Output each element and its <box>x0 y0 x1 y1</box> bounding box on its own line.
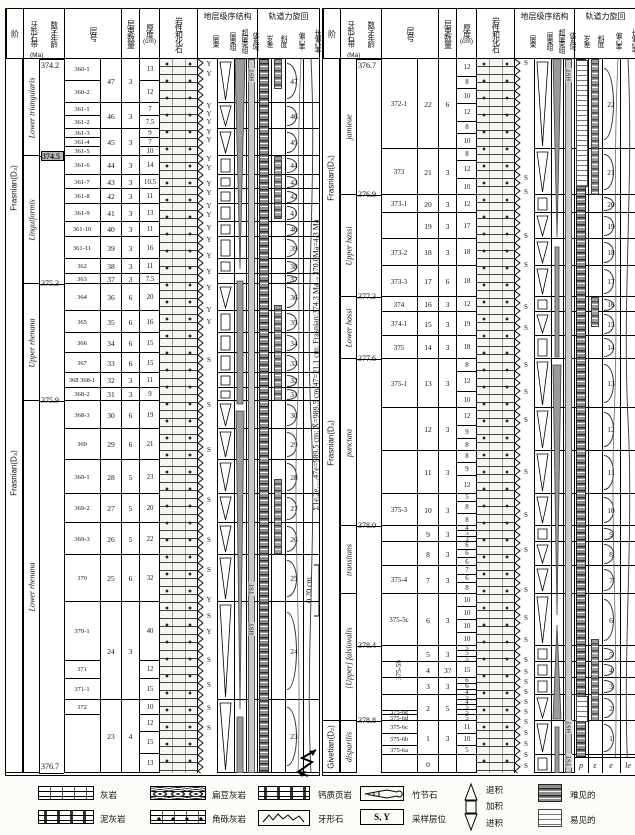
thickness-cell: 588 <box>456 494 476 526</box>
thickness-value: 6 <box>457 550 477 558</box>
bundle-unit-triangle-icon <box>535 151 550 193</box>
bed-row-group: 369-128523 <box>64 460 159 494</box>
thickness-cell: 401215 <box>139 602 159 700</box>
bundle-unit-triangle-icon <box>535 410 550 449</box>
column-separator <box>574 59 575 773</box>
header-numeric-age: 数字年龄 <box>50 21 58 47</box>
bundle-unit-rect-icon <box>218 355 233 371</box>
bed-sub-label: 370-1 <box>64 602 100 661</box>
conodont-zone-box: Lower triangularis <box>23 59 39 156</box>
sample-horizon-label: S <box>204 495 214 504</box>
column-separator <box>303 59 304 773</box>
bed-sub-label: 361-10 <box>64 222 100 237</box>
bundle-unit-triangle-icon <box>535 361 550 406</box>
header-thickness-label: 厚度 <box>146 24 154 38</box>
thickness-cell: 664 <box>456 678 476 695</box>
thickness-value: 7.5 <box>140 274 160 284</box>
bed-row-group: 37416312 <box>381 297 476 312</box>
bed-cell <box>381 678 417 695</box>
bundle-count-cell: 6 <box>121 401 139 429</box>
bed-cell: 375-6e375-6d <box>381 695 417 721</box>
bed-sub-label: 361-3 <box>64 129 100 138</box>
thickness-cell: 14 <box>139 156 159 175</box>
thickness-cell: 16 <box>139 311 159 333</box>
bed-row-group: 93453 <box>381 526 476 542</box>
sample-horizon-label: S <box>521 58 531 67</box>
bed-cell: 369-1 <box>64 460 100 494</box>
bed-row-group: 361-1139316 <box>64 237 159 259</box>
header-bed-number-label: 层号 <box>406 27 414 41</box>
bundle-number-cell: 23 <box>100 700 121 773</box>
bed-cell: 375-6c375-6b375-6a <box>381 721 417 755</box>
bed-label: 374-1 <box>381 312 417 336</box>
common-swatch <box>538 809 562 827</box>
bed-row-group: 33664 <box>381 678 476 695</box>
thickness-cell: 22 <box>139 523 159 555</box>
bundle-number-cell: 38 <box>100 259 121 274</box>
breccia-limestone-swatch <box>150 810 206 824</box>
bundle-number-cell: 0 <box>417 755 438 773</box>
bundle-unit-rect-icon <box>218 313 233 331</box>
age-label: 374.5 <box>41 151 64 161</box>
bundle-count-cell: 5 <box>121 494 139 523</box>
tentaculite-label: 竹节石 <box>412 789 438 801</box>
thickness-cell: 12 <box>456 195 476 213</box>
header-orbit-sub-2: 偏心率 <box>602 23 620 59</box>
bed-row-group: 375-5b43?15 <box>381 662 476 678</box>
thickness-value: 18 <box>457 336 477 359</box>
bed-row-group: 37321381210 <box>381 149 476 195</box>
header-orbit-sub-1: 斜度 <box>588 23 602 59</box>
age-label: 375.9 <box>41 396 64 406</box>
bed-row-group: 370-1371371-1243401215 <box>64 602 159 700</box>
header-stage: 阶 <box>323 9 340 59</box>
thickness-value: 8 <box>457 439 477 451</box>
header-seq-sub-1: 层束组 <box>534 23 551 59</box>
precession-light-segment <box>576 696 588 722</box>
bed-cell: 373-2 <box>381 239 417 266</box>
bundle-number-cell: 15 <box>417 312 438 336</box>
bundle-unit-rect-icon <box>535 338 550 357</box>
header-conodont-zone: 牙形石带 <box>30 21 38 47</box>
bed-label: 372-1 <box>381 59 417 149</box>
bundle-unit-triangle-icon <box>218 557 233 600</box>
thickness-cell: 20 <box>139 494 159 523</box>
bundle-unit-rect-icon <box>218 390 233 399</box>
long-eccentricity-curve <box>620 59 635 773</box>
bundle-count-cell: 3 <box>121 156 139 175</box>
bed-row-group: 369-326522 <box>64 523 159 555</box>
thickness-value: 16 <box>140 237 160 259</box>
thickness-value: 32 <box>140 555 160 602</box>
bed-row-group: 375-473768 <box>381 566 476 594</box>
bundle-unit-rect-icon <box>218 375 233 386</box>
bundle-number-cell: 27 <box>100 494 121 523</box>
retrogradation-icon <box>465 784 477 800</box>
column-body-left: Frasnian(D₃)Frasnian(D₃)Lower triangular… <box>6 59 319 773</box>
bed-row-group: 1138912 <box>381 451 476 494</box>
bed-cell: 375-3 <box>381 494 417 526</box>
sample-horizon-label: S <box>521 687 531 696</box>
thickness-cell: 77.5 <box>139 103 159 129</box>
bundle-unit-rect-icon <box>218 239 233 257</box>
sample-horizon-label: Y <box>204 251 214 260</box>
tentaculite-icon <box>361 787 403 800</box>
sample-horizon-label: Y <box>204 267 214 276</box>
bed-cell: 375-5c <box>381 594 417 646</box>
thickness-cell: 54555 <box>456 695 476 721</box>
thickness-cell: 768 <box>456 566 476 594</box>
bed-cell: 368-3 <box>64 401 100 429</box>
bed-row-group: 3633737.5 <box>64 274 159 284</box>
bundle-count-cell: 3 <box>438 494 456 526</box>
bundle-count-cell: 6 <box>121 353 139 373</box>
bundle-unit-rect-icon <box>535 528 550 540</box>
sample-horizon-label: S <box>521 697 531 706</box>
bundle-count-cell: 3 <box>121 59 139 103</box>
conodont-zone-label: jamieae <box>345 114 354 139</box>
conodont-zone-box: Upper rhenana <box>23 284 39 401</box>
bed-cell: 361-3361-4361-5 <box>64 129 100 156</box>
bundle-unit-triangle-icon <box>218 496 233 521</box>
bundle-number-cell: 19 <box>417 213 438 239</box>
bed-row-group: 361-743310.5 <box>64 175 159 189</box>
bundle-number-cell: 17 <box>417 266 438 297</box>
bed-cell: 366 <box>64 333 100 353</box>
thickness-cell: 17 <box>456 213 476 239</box>
header-seq-sub-0: 层束 <box>197 23 217 59</box>
thickness-value: 12 <box>140 715 160 732</box>
bed-label: 373-2 <box>381 239 417 266</box>
sample-horizon-label: Y <box>204 117 214 126</box>
bed-sub-label: 361-2 <box>64 116 100 129</box>
age-label: 378.4 <box>358 641 381 651</box>
sample-horizon-label: S <box>521 415 531 424</box>
thickness-value: 22 <box>140 523 160 555</box>
thickness-value: 6 <box>457 558 477 566</box>
thickness-value: 11 <box>140 259 160 274</box>
superbundle-wedges <box>551 59 563 773</box>
bed-row-group: 361-842311 <box>64 189 159 204</box>
precession-column <box>576 59 586 773</box>
systems-tract-label: HST <box>248 68 255 82</box>
rare-swatch <box>538 784 562 802</box>
bed-sub-label: 367 <box>64 353 100 373</box>
header-orbit-sub-3: 长偏心率 <box>303 23 319 59</box>
header-lithology: 岩性和化石 <box>476 9 514 59</box>
sample-horizon-label: S <box>521 231 531 240</box>
bed-cell: 361-11 <box>64 237 100 259</box>
bed-row-group: 373-218318 <box>381 239 476 266</box>
orbital-footer-label: p <box>574 758 588 773</box>
bundle-unit-rect-icon <box>218 158 233 173</box>
bed-label: 373-1 <box>381 195 417 213</box>
bed-sub-label: 361-7 <box>64 175 100 189</box>
age-tick <box>39 59 64 60</box>
bed-cell: 375-5b <box>381 662 417 678</box>
marl-swatch <box>38 810 94 824</box>
header-orbit-sub-0: 岁差 <box>257 23 271 59</box>
bed-cell: 369 <box>64 429 100 460</box>
sample-horizon-label: Y <box>204 317 214 326</box>
thickness-value: 10 <box>140 700 160 715</box>
header-orbital-title: 轨道力旋回 <box>586 11 626 22</box>
conodont-zone-box: disparilis <box>340 721 356 773</box>
column-separator <box>588 59 589 773</box>
bundle-count-cell: 3 <box>438 542 456 566</box>
stage-label: Frasnian(D₃) <box>327 155 336 201</box>
sample-horizon-label: S <box>521 260 531 269</box>
bundle-number-cell: 1 <box>417 721 438 755</box>
bed-cell: 373-3 <box>381 266 417 297</box>
bed-cell: 370 <box>64 555 100 602</box>
header-age-unit: (Ma) <box>347 52 360 59</box>
aggradation-label: 加积 <box>486 800 503 812</box>
thickness-value: 12 <box>140 81 160 103</box>
thickness-cell: 19 <box>456 312 476 336</box>
bundle-number-cell: 36 <box>100 284 121 311</box>
thickness-value: 11 <box>140 373 160 388</box>
bed-row-group: 83666 <box>381 542 476 566</box>
conodont-zone-label: Upper rhenana <box>28 318 37 367</box>
bed-cell: 360-1360-2 <box>64 59 100 103</box>
thickness-value: 5 <box>457 746 477 755</box>
bundle-unit-triangle-icon <box>535 241 550 264</box>
sampling-swatch: S, Y <box>360 809 404 825</box>
header-bundle-count-label: 层束数量 <box>127 20 135 48</box>
thickness-value: 17 <box>457 213 477 239</box>
bed-row-group: 368 368-132311 <box>64 373 159 388</box>
conodont-zone-box: transitans <box>340 526 356 594</box>
bed-sub-label: 369 <box>64 429 100 460</box>
tentaculite-swatch <box>360 786 404 801</box>
bed-row-group: 369-227520 <box>64 494 159 523</box>
bundle-count-cell: 3 <box>438 526 456 542</box>
conodont-label: 牙形石 <box>318 813 344 825</box>
bundle-unit-triangle-icon <box>218 431 233 458</box>
thickness-cell: 10101010 <box>456 594 476 646</box>
bed-cell: 370-1371371-1 <box>64 602 100 700</box>
legend: 灰岩 泥灰岩 扁豆灰岩 角砾灰岩 钙质页岩 牙形石 竹节石 S, Y 采样层位 … <box>0 780 635 835</box>
sample-horizon-label: Y <box>204 179 214 188</box>
header-orbit-sub-0: 岁差 <box>574 23 588 59</box>
thickness-value: 7 <box>457 566 477 575</box>
bundle-unit-triangle-icon <box>535 61 550 147</box>
bundle-count-cell: 5 <box>121 523 139 555</box>
sample-horizon-label: Y <box>204 223 214 232</box>
bed-cell: 375-4 <box>381 566 417 594</box>
thickness-cell: 21 <box>139 429 159 460</box>
bundle-unit-triangle-icon <box>218 105 233 127</box>
bundle-unit-rect-icon <box>218 177 233 187</box>
sample-horizon-label: S <box>521 635 531 644</box>
thickness-value: 8 <box>457 77 477 89</box>
bed-sub-label: 369-1 <box>64 460 100 494</box>
bundle-number-cell: 39 <box>100 237 121 259</box>
bundle-number-cell: 24 <box>100 602 121 700</box>
header-orbit-sub-2: 偏心率 <box>285 23 303 59</box>
obliquity-segment <box>591 59 599 195</box>
bed-cell: 369-3 <box>64 523 100 555</box>
thickness-value: 15 <box>140 333 160 353</box>
thickness-value: 16 <box>140 311 160 333</box>
thickness-cell: 9 <box>139 388 159 401</box>
bed-cell: 361-6 <box>64 156 100 175</box>
sample-horizon-label: S <box>521 750 531 759</box>
bundle-count-cell: 6 <box>438 59 456 149</box>
thickness-cell: 10.5 <box>139 175 159 189</box>
bed-row-group: 37223410121513 <box>64 700 159 773</box>
header-thickness-unit: (cm) <box>460 38 473 45</box>
stage-box: Frasnian(D₃)Frasnian(D₃) <box>323 59 340 721</box>
header-seq-sub-1: 层束组 <box>217 23 234 59</box>
bed-cell: 372-1 <box>381 59 417 149</box>
sample-horizon-label: Y <box>204 135 214 144</box>
bundle-number-cell: 9 <box>417 526 438 542</box>
lithology-column <box>159 59 197 773</box>
thickness-value: 6 <box>457 575 477 583</box>
retrogradation-label: 退积 <box>486 784 503 796</box>
progradation-icon <box>465 814 477 830</box>
sample-horizon-label: S <box>204 703 214 712</box>
bundle-count-cell: 6 <box>121 311 139 333</box>
age-label: 378.0 <box>358 521 381 531</box>
header-orbit-sub-1: 斜度 <box>271 23 285 59</box>
thickness-cell: 18 <box>456 239 476 266</box>
thickness-cell: 81210 <box>456 359 476 408</box>
thickness-cell: 11105 <box>456 721 476 755</box>
bundle-count-cell: 3 <box>438 408 456 451</box>
bed-sub-label: 368 368-1 <box>64 373 100 388</box>
bundle-number-cell: 37 <box>100 274 121 284</box>
sample-horizon-label: S <box>521 728 531 737</box>
header-sequence-title: 地层级序结构 <box>521 11 569 22</box>
bed-sub-label: 375-6b <box>381 734 417 746</box>
thickness-cell: 32 <box>139 555 159 602</box>
conodont-zone-label: Lower rhenana <box>28 563 37 612</box>
header-stage: 阶 <box>6 9 23 59</box>
bundle-count-cell: 3 <box>121 388 139 401</box>
sample-horizon-label: S <box>204 400 214 409</box>
bundle-number-cell: 2 <box>417 695 438 721</box>
bundle-number-cell: 13 <box>417 359 438 408</box>
bundle-unit-triangle-icon <box>535 596 550 644</box>
age-label: 375.3 <box>41 279 64 289</box>
bundle-unit-triangle-icon <box>535 544 550 564</box>
bed-sub-label: 360-2 <box>64 81 100 103</box>
conodont-icon <box>259 811 309 825</box>
bed-cell: 372 <box>64 700 100 773</box>
obliquity-segment <box>274 156 282 219</box>
bed-sub-label: 361-5 <box>64 147 100 156</box>
bed-sub-label: 360-1 <box>64 59 100 81</box>
bundle-number-cell: 29 <box>100 429 121 460</box>
systems-tract-label: HST <box>248 622 255 636</box>
thickness-value: 15 <box>140 732 160 754</box>
conodont-zone-label: Upper hassi <box>345 227 354 266</box>
strat-column-right: 阶层号层束数量岩性和化石牙形石带数字年龄(Ma)厚度(cm)地层级序结构层束层束… <box>322 8 635 776</box>
stage-label: Frasnian(D₃) <box>10 165 19 211</box>
bundle-number-cell: 12 <box>417 408 438 451</box>
bed-sub-label: 361-4 <box>64 138 100 147</box>
header-orbit-sub-3: 长偏心率 <box>620 23 635 59</box>
bundle-number-cell: 5 <box>417 646 438 662</box>
bundle-unit-triangle-icon <box>218 702 233 771</box>
sample-horizon-label: Y <box>204 69 214 78</box>
thickness-cell: 9710 <box>139 129 159 156</box>
bundle-number-cell: 20 <box>417 195 438 213</box>
thickness-value: 10 <box>457 89 477 104</box>
bed-sub-label: 371 <box>64 661 100 679</box>
column-separator <box>271 59 272 773</box>
age-label: 376.9 <box>358 190 381 200</box>
thickness-value: 13 <box>140 204 160 222</box>
thickness-value: 8 <box>457 583 477 594</box>
thickness-value: 12 <box>457 408 477 426</box>
column-separator <box>620 59 621 773</box>
age-label: 374.2 <box>41 61 64 71</box>
age-label: 376.7 <box>358 61 381 71</box>
bundle-number-cell: 41 <box>100 204 121 222</box>
header-zone-age: 牙形石带数字年龄(Ma) <box>23 9 64 59</box>
thickness-value: 10 <box>457 594 477 607</box>
sample-horizon-label: S <box>521 677 531 686</box>
zigzag-arrow-icon <box>292 748 322 780</box>
header-bed-number: 层号 <box>64 9 121 59</box>
bundle-count-cell: 3 <box>438 359 456 408</box>
thickness-value: 40 <box>140 602 160 661</box>
conodont-zone-label: transitans <box>345 544 354 576</box>
thickness-value: 10 <box>457 620 477 633</box>
bed-label: 375-5b <box>395 660 403 680</box>
systems-tract-label: HST <box>565 720 572 734</box>
thickness-cell: 18 <box>456 336 476 359</box>
thickness-value: 7.5 <box>140 116 160 129</box>
bundle-number-cell: 34 <box>100 333 121 353</box>
marl-label: 泥灰岩 <box>100 813 126 825</box>
eccentricity-envelope-curve <box>602 59 620 773</box>
thickness-cell: 18 <box>456 266 476 297</box>
thickness-value: 8 <box>457 451 477 463</box>
bed-sub-label: 361-8 <box>64 189 100 204</box>
eccentricity-envelope-curve <box>285 59 303 773</box>
bundle-count-cell: 6 <box>121 429 139 460</box>
bundle-count-cell: 3 <box>438 678 456 695</box>
bed-sub-label: 371-1 <box>64 679 100 700</box>
bundle-unit-triangle-icon <box>218 286 233 309</box>
column-separator <box>551 59 552 773</box>
thickness-value: 12 <box>140 661 160 679</box>
bundle-count-cell: 3 <box>438 213 456 239</box>
header-numeric-age: 数字年龄 <box>367 21 375 47</box>
bundle-count-cell: 3 <box>438 195 456 213</box>
conodont-zone-label: Lower hassi <box>345 309 354 348</box>
sample-horizon-label: Y <box>204 305 214 314</box>
bundle-unit-triangle-icon <box>218 525 233 553</box>
column-separator <box>514 59 515 773</box>
header-bundle-count: 层束数量 <box>121 9 139 59</box>
sampling-symbol: S, Y <box>374 812 390 822</box>
header-seq-sub-2: 超层束组 <box>234 23 246 59</box>
header-lithology-label: 岩性和化石 <box>492 17 500 52</box>
thickness-value: 12 <box>457 59 477 77</box>
age-column <box>356 59 381 773</box>
thickness-cell: 453 <box>456 526 476 542</box>
bundle-unit-triangle-icon <box>535 568 550 592</box>
bundle-number-cell: 28 <box>100 460 121 494</box>
stage-label: Frasnian(D₃) <box>327 420 336 466</box>
thickness-value: 18 <box>457 266 477 297</box>
